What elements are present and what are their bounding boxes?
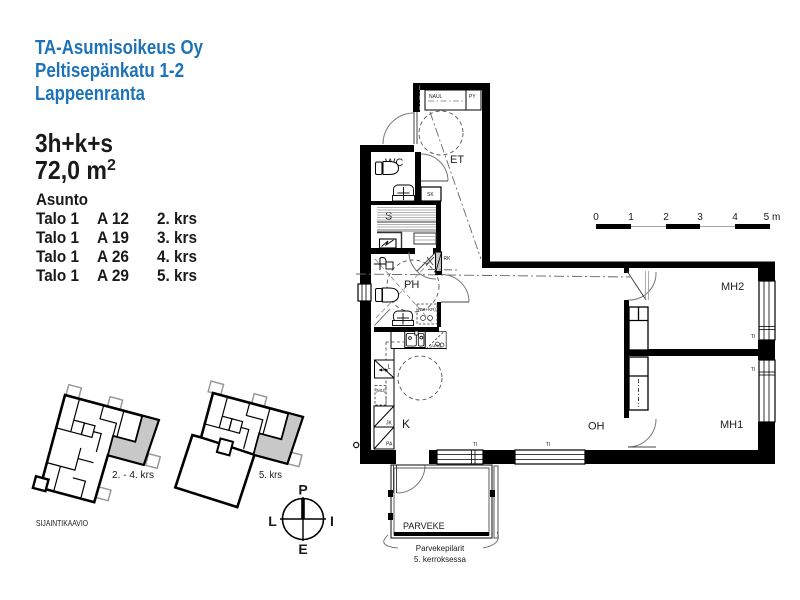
svg-text:RK: RK <box>444 256 452 262</box>
svg-text:Talo 1A 264. krs: Talo 1A 264. krs <box>36 248 197 266</box>
svg-text:E: E <box>298 541 307 557</box>
svg-text:5. krs: 5. krs <box>259 470 282 481</box>
svg-text:ET: ET <box>450 154 464 166</box>
svg-text:1: 1 <box>628 212 634 223</box>
svg-text:0: 0 <box>593 212 599 223</box>
svg-text:Talo 1A 295. krs: Talo 1A 295. krs <box>36 267 197 285</box>
svg-text:3: 3 <box>697 212 703 223</box>
svg-text:TA-Asumisoikeus Oy: TA-Asumisoikeus Oy <box>35 37 204 59</box>
svg-text:3h+k+s: 3h+k+s <box>35 128 113 158</box>
svg-text:Peltisepänkatu 1-2: Peltisepänkatu 1-2 <box>35 60 184 82</box>
svg-text:SK: SK <box>427 192 434 198</box>
svg-text:2. - 4. krs: 2. - 4. krs <box>112 470 154 481</box>
svg-text:P: P <box>298 482 307 498</box>
svg-text:SIJAINTIKAAVIO: SIJAINTIKAAVIO <box>36 518 88 528</box>
svg-text:5. kerroksessa: 5. kerroksessa <box>414 555 467 564</box>
svg-text:OH: OH <box>588 421 605 433</box>
svg-text:I: I <box>330 513 334 529</box>
svg-text:(PK+KR): (PK+KR) <box>418 307 436 312</box>
svg-text:Talo 1A 122. krs: Talo 1A 122. krs <box>36 210 197 228</box>
svg-text:JK: JK <box>386 421 393 427</box>
svg-text:NAUL: NAUL <box>429 94 443 100</box>
svg-text:TI: TI <box>751 334 755 340</box>
svg-text:Asunto: Asunto <box>36 191 88 209</box>
svg-text:MH2: MH2 <box>721 281 744 293</box>
svg-text:PARVEKE: PARVEKE <box>403 521 445 531</box>
svg-text:Talo 1A 193. krs: Talo 1A 193. krs <box>36 229 197 247</box>
svg-text:2: 2 <box>663 212 669 223</box>
svg-text:(APK): (APK) <box>430 344 443 349</box>
svg-text:4: 4 <box>732 212 738 223</box>
svg-text:PA: PA <box>386 442 393 448</box>
svg-text:Parvekepilarit: Parvekepilarit <box>416 544 465 553</box>
svg-text:5 m: 5 m <box>764 212 781 223</box>
svg-text:MH1: MH1 <box>720 419 743 431</box>
svg-text:Lappeenranta: Lappeenranta <box>35 83 146 105</box>
svg-text:TI: TI <box>546 442 550 448</box>
svg-text:(MU): (MU) <box>376 388 386 393</box>
svg-text:TI: TI <box>473 442 477 448</box>
svg-text:L: L <box>268 513 277 529</box>
svg-text:TI: TI <box>751 367 755 373</box>
svg-text:K: K <box>402 417 410 431</box>
svg-text:72,0 m2: 72,0 m2 <box>35 155 116 185</box>
svg-text:PY: PY <box>469 94 476 100</box>
